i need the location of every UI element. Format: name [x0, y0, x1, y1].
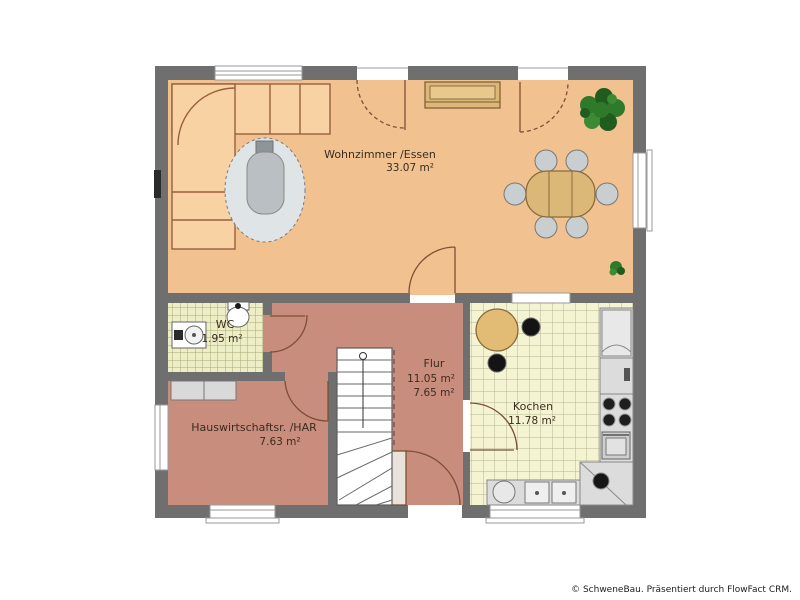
wall-segment: [168, 293, 410, 303]
oven: [602, 432, 630, 459]
corner-basin: [593, 473, 609, 489]
area-label-hall-net: 7.65 m²: [413, 387, 454, 399]
pass-through-opening: [512, 293, 570, 303]
wall-segment: [463, 452, 470, 505]
window-top-living: [215, 66, 302, 80]
dining-chair: [566, 216, 588, 238]
wall-segment: [155, 66, 168, 405]
credit-text: © SchweneBau. Präsentiert durch FlowFact…: [571, 585, 792, 595]
wall-segment: [263, 352, 272, 372]
wall-segment: [302, 66, 357, 80]
floor-plan-canvas: Wohnzimmer /Essen 33.07 m² WC 1.95 m² Ha…: [0, 0, 800, 600]
dining-chair: [566, 150, 588, 172]
terrace-door-opening: [518, 66, 568, 80]
area-label-wc: 1.95 m²: [201, 333, 242, 345]
counter-handle: [624, 368, 630, 381]
window-bottom-utility: [206, 505, 279, 523]
wall-segment: [168, 372, 285, 381]
kitchen-stool: [522, 318, 540, 336]
round-sink: [493, 481, 515, 503]
dining-chair: [535, 216, 557, 238]
kitchen-counter-right: [600, 308, 633, 462]
area-label-living: 33.07 m²: [386, 162, 434, 174]
room-label-utility: Hauswirtschaftsr. /HAR: [191, 421, 317, 434]
wall-segment: [462, 505, 490, 518]
wall-segment: [570, 293, 633, 303]
entrance-door-opening: [408, 505, 462, 518]
wall-segment: [408, 66, 518, 80]
kitchen-table: [476, 309, 518, 351]
floor-plan-page: Wohnzimmer /Essen 33.07 m² WC 1.95 m² Ha…: [0, 0, 800, 600]
window-left-utility: [155, 405, 168, 470]
wall-segment: [328, 381, 337, 505]
wall-segment: [328, 372, 337, 381]
staircase: [337, 348, 394, 505]
dining-table: [526, 171, 595, 217]
room-label-kitchen: Kochen: [513, 400, 553, 413]
utility-appliance: [171, 381, 236, 400]
armchair: [247, 152, 284, 214]
area-label-kitchen: 11.78 m²: [508, 415, 556, 427]
chimney-block: [154, 170, 161, 198]
kitchen-corner-counter: [580, 462, 633, 505]
window-bottom-kitchen: [486, 505, 584, 523]
rug-and-armchair: [225, 138, 305, 242]
wall-segment: [633, 228, 646, 518]
wall-segment: [275, 505, 408, 518]
terrace-door-opening: [357, 66, 408, 80]
kitchen-counter-bottom: [487, 480, 580, 505]
wall-segment: [633, 66, 646, 153]
dining-chair: [504, 183, 526, 205]
fridge: [602, 310, 631, 356]
wall-segment: [263, 303, 272, 315]
kitchen-stool: [488, 354, 506, 372]
wall-segment: [455, 293, 512, 303]
area-label-utility: 7.63 m²: [259, 436, 300, 448]
dining-chair: [596, 183, 618, 205]
sideboard: [425, 82, 500, 108]
room-label-wc: WC: [216, 318, 235, 331]
window-right-dining: [633, 150, 652, 231]
room-label-living: Wohnzimmer /Essen: [324, 148, 436, 161]
area-label-hall: 11.05 m²: [407, 373, 455, 385]
room-label-hall: Flur: [424, 357, 445, 370]
dining-chair: [535, 150, 557, 172]
wall-segment: [463, 303, 470, 400]
wall-segment: [155, 505, 210, 518]
